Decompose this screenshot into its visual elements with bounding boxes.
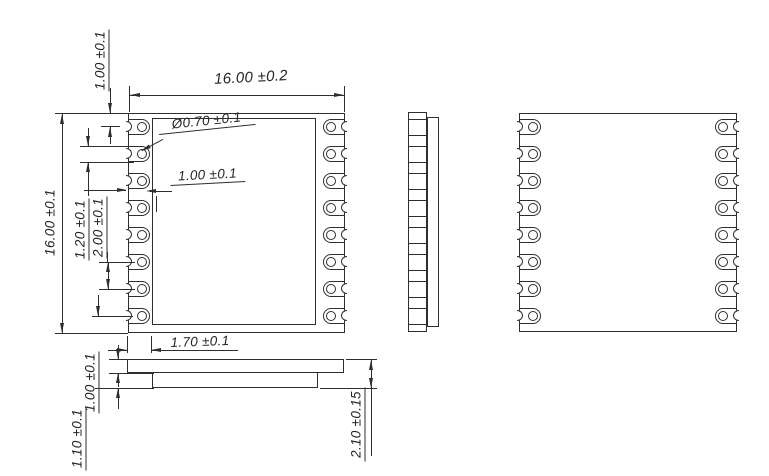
castellated-pad (323, 119, 345, 135)
castellated-pad (519, 308, 541, 324)
arrowhead (116, 388, 120, 398)
dim-label-pad-pitch: 2.00 ±0.1 (91, 197, 108, 259)
side-body-outline (427, 117, 439, 327)
extension-line (129, 86, 130, 112)
castellated-pad (323, 146, 345, 162)
castellated-pad (323, 308, 345, 324)
side-pad-divider (408, 254, 427, 255)
dimension-line (130, 95, 344, 96)
castellated-pad (519, 119, 541, 135)
castellated-pad (519, 200, 541, 216)
dim-label-pcb-thickness: 1.00 ±0.1 (83, 352, 100, 414)
arrowhead (86, 162, 90, 172)
castellated-pad (715, 119, 737, 135)
castellated-pad (323, 227, 345, 243)
side-pad-divider (408, 281, 427, 282)
castellated-pad (519, 254, 541, 270)
front-shield-outline (152, 118, 316, 325)
side-pad-strip (408, 112, 427, 332)
arrowhead (96, 306, 100, 316)
arrowhead (130, 93, 140, 97)
arrowhead (146, 189, 156, 193)
castellated-pad (715, 173, 737, 189)
dim-label-overall-height: 16.00 ±0.1 (43, 179, 58, 267)
side-pad-divider (408, 308, 427, 309)
extension-line (95, 388, 154, 389)
castellated-pad (519, 146, 541, 162)
side-pad-divider (408, 216, 427, 217)
side-pad-divider (408, 162, 427, 163)
dim-label-pad-top-offset: 1.00 ±0.1 (93, 30, 110, 92)
arrowhead (334, 93, 344, 97)
castellated-pad (715, 254, 737, 270)
arrowhead (116, 373, 120, 383)
extension-line (92, 316, 133, 317)
extension-line (55, 113, 128, 114)
castellated-pad (715, 146, 737, 162)
castellated-pad (128, 227, 150, 243)
castellated-pad (715, 308, 737, 324)
castellated-pad (323, 281, 345, 297)
arrowhead (117, 188, 127, 192)
pcb-profile-outline (127, 359, 344, 373)
castellated-pad (128, 200, 150, 216)
extension-line (99, 262, 135, 263)
side-pad-divider (408, 324, 427, 325)
castellated-pad (323, 173, 345, 189)
extension-line (101, 126, 120, 127)
castellated-pad (128, 173, 150, 189)
side-pad-divider (408, 297, 427, 298)
extension-line (55, 333, 128, 334)
arrowhead (106, 279, 110, 289)
dimension-line (371, 359, 372, 456)
side-pad-divider (408, 270, 427, 271)
castellated-pad (519, 227, 541, 243)
shield-profile-outline (152, 372, 318, 388)
arrowhead (106, 262, 110, 272)
extension-line (127, 336, 128, 353)
castellated-pad (128, 119, 150, 135)
side-pad-divider (408, 200, 427, 201)
side-pad-divider (408, 227, 427, 228)
arrowhead (116, 349, 120, 359)
castellated-pad (715, 281, 737, 297)
arrowhead (369, 378, 373, 388)
castellated-pad (323, 200, 345, 216)
dim-label-pad-width: 1.20 ±0.1 (73, 199, 90, 261)
arrowhead (108, 103, 112, 113)
extension-line (80, 146, 134, 147)
extension-line (80, 162, 134, 163)
side-pad-divider (408, 243, 427, 244)
side-pad-divider (408, 146, 427, 147)
arrowhead (86, 136, 90, 146)
extension-line (99, 289, 135, 290)
dim-label-overall-thickness: 2.10 ±0.15 (349, 388, 366, 462)
side-pad-divider (408, 135, 427, 136)
side-pad-divider (408, 189, 427, 190)
arrowhead (369, 360, 373, 370)
dim-label-overall-width: 16.00 ±0.2 (196, 66, 307, 89)
extension-line (344, 86, 345, 112)
dimension-line (62, 114, 63, 333)
extension-line (156, 196, 157, 212)
arrowhead (60, 114, 64, 124)
arrowhead (108, 127, 112, 137)
dim-label-shield-inset: 1.70 ±0.1 (164, 333, 236, 351)
arrowhead (60, 323, 64, 333)
back-body-outline (519, 113, 737, 332)
side-pad-divider (408, 119, 427, 120)
mechanical-drawing: 16.00 ±0.2 16.00 ±0.1 1.00 ±0.1 Ø0.70 ±0… (0, 0, 769, 476)
castellated-pad (715, 227, 737, 243)
side-pad-divider (408, 173, 427, 174)
castellated-pad (323, 254, 345, 270)
castellated-pad (715, 200, 737, 216)
castellated-pad (519, 281, 541, 297)
extension-line (109, 359, 128, 360)
castellated-pad (519, 173, 541, 189)
dim-label-shield-thickness: 1.10 ±0.1 (70, 407, 87, 471)
